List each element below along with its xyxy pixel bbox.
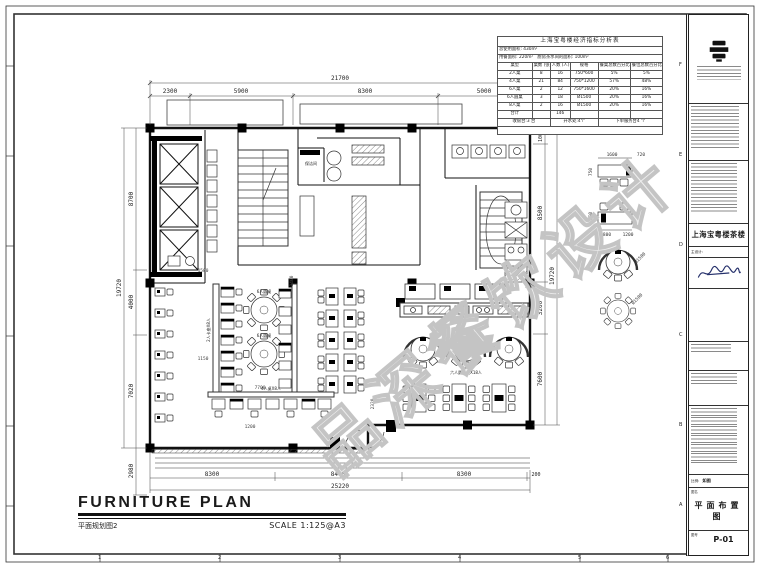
svg-text:800: 800: [603, 232, 611, 238]
field-lines: [691, 344, 731, 352]
svg-text:200: 200: [531, 472, 540, 478]
svg-text:4人桌X8人: 4人桌X8人: [261, 385, 281, 391]
svg-text:6人圆桌: 6人圆桌: [257, 288, 272, 294]
svg-text:7020: 7020: [128, 383, 135, 398]
svg-text:6人圆桌: 6人圆桌: [257, 332, 272, 338]
econ-header: 人数 (人): [550, 63, 570, 71]
econ-header: 桌数 (张): [532, 63, 550, 71]
furniture-detail-c: [599, 250, 637, 281]
project-name: 上海宝粤楼茶楼: [689, 224, 748, 247]
drawing-number-label: 图号: [691, 532, 698, 537]
econ-empty-row: [498, 127, 663, 135]
notes-lines: [691, 106, 739, 150]
title-underline: [78, 518, 346, 519]
svg-text:21700: 21700: [331, 75, 349, 82]
econ-row: 6人桌212 750*160020%16%: [498, 87, 663, 95]
furniture-detail-b: [598, 203, 632, 230]
title-block: 上海宝粤楼茶楼 主设计: 比例: 如图 图名 平面布置图 图号 P-01: [686, 14, 749, 556]
econ-row: 6人圆桌318 Ø150020%16%: [498, 95, 663, 103]
frame-row-letter: E: [679, 152, 682, 158]
svg-text:19720: 19720: [549, 267, 556, 285]
svg-text:1200: 1200: [623, 232, 634, 238]
svg-text:8300: 8300: [205, 471, 220, 478]
svg-text:Ø1500: Ø1500: [633, 250, 648, 265]
svg-text:3200: 3200: [537, 300, 544, 315]
econ-header: 桌型: [498, 63, 533, 71]
drawing-scale: SCALE 1:125@A3: [269, 521, 346, 531]
legend-lines: [691, 163, 737, 213]
svg-text:8400: 8400: [331, 471, 346, 478]
svg-text:2300: 2300: [163, 88, 178, 95]
svg-text:8700: 8700: [128, 191, 135, 206]
frame-row-letter: C: [679, 332, 683, 338]
svg-text:保洁间: 保洁间: [305, 160, 317, 166]
kitchen-equipment: [168, 145, 527, 282]
frame-col-number: 2: [218, 555, 221, 561]
svg-text:2人卡座X8人: 2人卡座X8人: [205, 318, 211, 342]
frame-row-letter: A: [679, 502, 682, 508]
canopy-outlines: [167, 100, 462, 125]
designer-signature: [696, 262, 742, 284]
west-two-seat-tables: [155, 288, 173, 422]
svg-text:5900: 5900: [234, 88, 249, 95]
econ-row: 4人桌2184 750*120057%48%: [498, 79, 663, 87]
drawing-title: FURNITURE PLAN: [78, 494, 346, 516]
banquette-row-b: [279, 284, 297, 396]
econ-header-row: 桌型 桌数 (张) 人数 (人) 规格 餐桌总数百分比 餐位总数百分比: [498, 63, 663, 71]
furniture-detail-a: [598, 158, 632, 186]
frame-col-number: 3: [338, 555, 341, 561]
svg-text:8300: 8300: [358, 88, 373, 95]
drawing-name: 平面布置图: [689, 500, 748, 522]
stairs-main: [238, 150, 288, 246]
frame-row-letter: B: [679, 422, 682, 428]
drawing-subtitle: 平面规划图2: [78, 521, 117, 531]
svg-text:2320: 2320: [370, 398, 376, 409]
svg-text:4000: 4000: [128, 294, 135, 309]
econ-row: 8人桌216 Ø150020%16%: [498, 103, 663, 111]
econ-info-dining: 用餐面积: 220m² 厨房茶水间的面积: 100m²: [498, 55, 663, 63]
company-logo-icon: [706, 39, 732, 63]
svg-text:1400: 1400: [289, 275, 295, 286]
round-booth-tables-east: [404, 337, 528, 368]
field-lines: [691, 373, 737, 385]
svg-text:8500: 8500: [537, 205, 544, 220]
bottom-banquette: [208, 392, 334, 417]
furniture-detail-d: [601, 294, 636, 329]
frame-row-letter: F: [679, 62, 682, 68]
round-tables-west: [244, 290, 285, 375]
frame-col-number: 6: [666, 555, 669, 561]
svg-text:1150: 1150: [198, 356, 209, 362]
center-four-top-tables: [318, 288, 364, 393]
frame-col-number: 1: [98, 555, 101, 561]
frame-col-number: 5: [578, 555, 581, 561]
drawing-number: P-01: [699, 535, 748, 544]
svg-text:5000: 5000: [477, 88, 492, 95]
svg-text:8300: 8300: [457, 471, 472, 478]
econ-footer-row: 收银台:3 台 开水处:4个 下单服务台4 个: [498, 119, 663, 127]
svg-text:Ø1500: Ø1500: [630, 291, 645, 306]
econ-total-row: 合计146: [498, 111, 663, 119]
svg-text:7600: 7600: [537, 371, 544, 386]
economic-indicator-table: 上海宝粤楼经济指标分析表 总使用面积: 430m² 用餐面积: 220m² 厨房…: [497, 36, 663, 135]
service-counter: [400, 284, 528, 317]
econ-header: 餐桌总数百分比: [598, 63, 630, 71]
east-four-top-tables: [403, 384, 515, 412]
svg-text:1600: 1600: [607, 152, 618, 158]
econ-header: 规格: [570, 63, 598, 71]
designer-label: 主设计:: [689, 247, 748, 258]
econ-info-area: 总使用面积: 430m²: [498, 47, 663, 55]
econ-header: 餐位总数百分比: [630, 63, 662, 71]
drawing-sheet: { "watermark": { "text": "品深餐饮设计" }, "ec…: [0, 0, 760, 568]
econ-row: 2人桌816 750*6005%5%: [498, 71, 663, 79]
svg-text:1200: 1200: [245, 424, 256, 430]
frame-row-letter: D: [679, 242, 683, 248]
svg-text:2980: 2980: [128, 463, 135, 478]
company-info-lines: [697, 66, 741, 80]
scale-label: 比例:: [691, 479, 699, 484]
banquette-row-a: [213, 284, 242, 396]
revision-rows: [691, 408, 737, 464]
svg-text:25220: 25220: [331, 483, 349, 490]
svg-text:750: 750: [588, 168, 594, 176]
svg-text:250: 250: [588, 212, 594, 220]
frame-col-number: 4: [458, 555, 461, 561]
scale-value: 如图: [702, 478, 710, 484]
drawing-name-label: 图名: [691, 489, 698, 494]
svg-text:六人圆卡桌X18人: 六人圆卡桌X18人: [450, 369, 482, 375]
svg-text:19720: 19720: [116, 279, 123, 297]
svg-text:1500: 1500: [198, 268, 209, 274]
drawing-title-area: FURNITURE PLAN 平面规划图2 SCALE 1:125@A3: [78, 494, 346, 531]
econ-table-title: 上海宝粤楼经济指标分析表: [498, 37, 663, 47]
svg-text:720: 720: [637, 152, 645, 158]
